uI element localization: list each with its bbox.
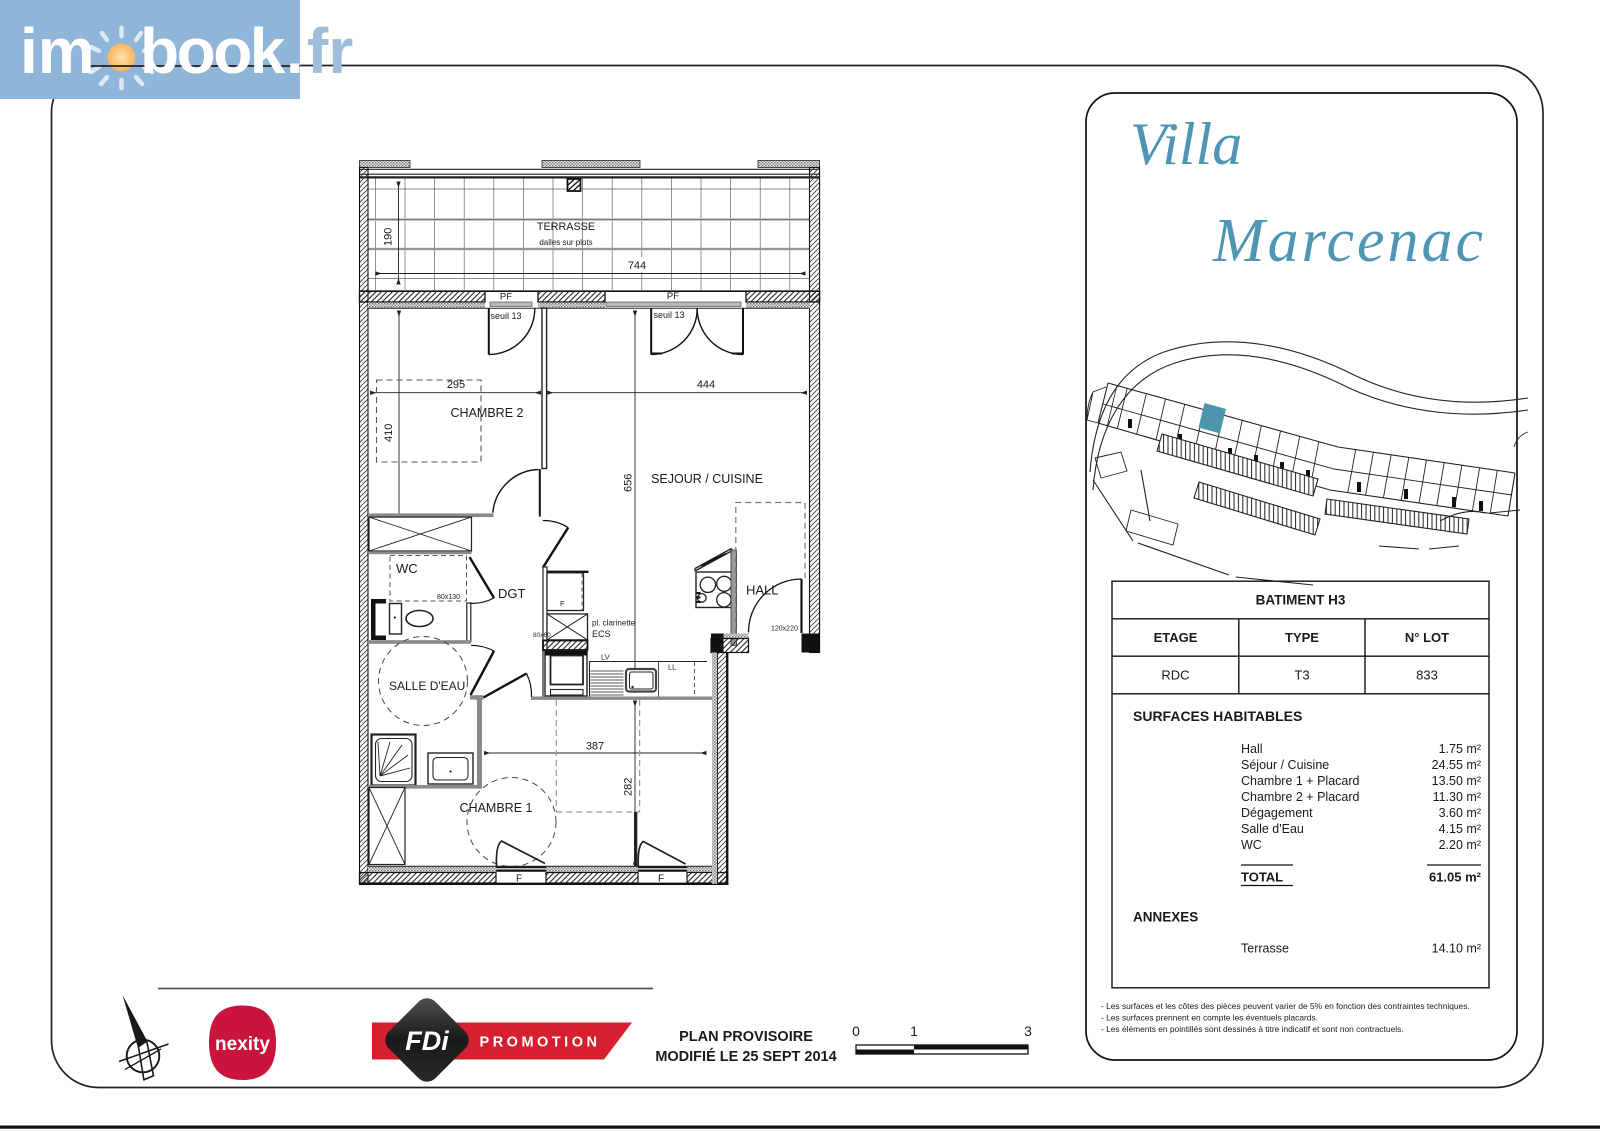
svg-text:SURFACES HABITABLES: SURFACES HABITABLES [1133,708,1302,724]
svg-text:3.60 m²: 3.60 m² [1439,806,1481,820]
svg-text:Hall: Hall [1241,742,1263,756]
svg-text:TYPE: TYPE [1285,630,1319,645]
svg-text:WC: WC [1241,838,1262,852]
svg-text:833: 833 [1416,668,1438,683]
svg-text:ETAGE: ETAGE [1154,630,1198,645]
svg-text:.: . [286,15,304,87]
svg-text:444: 444 [697,379,715,391]
svg-text:TERRASSE: TERRASSE [537,221,595,233]
svg-text:fr: fr [307,15,353,87]
svg-text:ANNEXES: ANNEXES [1133,910,1198,925]
svg-text:80x60: 80x60 [533,632,551,639]
svg-text:282: 282 [623,778,635,796]
svg-text:13.50 m²: 13.50 m² [1432,774,1481,788]
svg-text:410: 410 [383,424,395,442]
svg-text:RDC: RDC [1161,668,1189,683]
svg-text:SALLE D'EAU: SALLE D'EAU [389,679,465,693]
svg-text:seuil 13: seuil 13 [490,311,521,321]
svg-text:24.55 m²: 24.55 m² [1432,758,1481,772]
svg-text:N° LOT: N° LOT [1405,630,1449,645]
svg-text:CHAMBRE 1: CHAMBRE 1 [460,801,533,815]
svg-text:Marcenac: Marcenac [1212,207,1486,275]
svg-text:PF: PF [667,291,679,302]
svg-text:Chambre 2 + Placard: Chambre 2 + Placard [1241,790,1360,804]
svg-text:LL: LL [668,663,676,672]
svg-text:Terrasse: Terrasse [1241,942,1289,956]
svg-text:F: F [560,599,565,608]
svg-text:DGT: DGT [498,586,526,601]
svg-text:BATIMENT H3: BATIMENT H3 [1256,593,1346,608]
svg-text:120x220: 120x220 [771,626,798,633]
svg-text:seuil 13: seuil 13 [653,310,684,320]
svg-text:Séjour / Cuisine: Séjour / Cuisine [1241,758,1329,772]
svg-text:PLAN PROVISOIRE: PLAN PROVISOIRE [679,1029,813,1045]
svg-text:ECS: ECS [592,629,611,639]
svg-text:SEJOUR / CUISINE: SEJOUR / CUISINE [651,472,763,486]
svg-text:2.20 m²: 2.20 m² [1439,838,1481,852]
svg-text:190: 190 [383,228,395,246]
svg-text:Dégagement: Dégagement [1241,806,1313,820]
svg-text:PF: PF [500,292,512,303]
svg-text:book: book [140,15,286,87]
svg-text:LV: LV [601,653,610,662]
svg-text:14.10 m²: 14.10 m² [1432,942,1481,956]
svg-text:744: 744 [628,260,646,272]
svg-text:- Les surfaces prennent en com: - Les surfaces prennent en compte les év… [1101,1013,1318,1023]
svg-text:im: im [20,15,95,87]
svg-text:WC: WC [396,561,418,576]
svg-text:CHAMBRE 2: CHAMBRE 2 [451,406,524,420]
svg-text:PROMOTION: PROMOTION [480,1035,601,1051]
svg-text:295: 295 [447,379,465,391]
svg-text:FDi: FDi [405,1026,449,1056]
svg-text:387: 387 [586,741,604,753]
svg-text:61.05 m²: 61.05 m² [1429,870,1482,885]
svg-text:4.15 m²: 4.15 m² [1439,822,1481,836]
svg-text:- Les surfaces et les côtes de: - Les surfaces et les côtes des pièces p… [1101,1001,1470,1011]
svg-text:1: 1 [910,1023,918,1039]
svg-text:dalles sur plots: dalles sur plots [539,238,592,247]
svg-text:MODIFIÉ LE 25 SEPT 2014: MODIFIÉ LE 25 SEPT 2014 [655,1048,836,1065]
svg-text:- Les éléments en pointillés s: - Les éléments en pointillés sont dessin… [1101,1024,1404,1034]
svg-text:TOTAL: TOTAL [1241,870,1283,885]
svg-text:T3: T3 [1294,668,1309,683]
svg-text:656: 656 [623,474,635,492]
svg-text:80x130: 80x130 [437,594,460,601]
svg-text:0: 0 [852,1023,860,1039]
svg-text:F: F [516,874,522,885]
svg-text:HALL: HALL [746,583,779,598]
svg-text:Salle d'Eau: Salle d'Eau [1241,822,1304,836]
svg-text:1.75 m²: 1.75 m² [1439,742,1481,756]
svg-text:11.30 m²: 11.30 m² [1433,790,1481,804]
svg-text:pl. clarinette: pl. clarinette [592,619,636,628]
svg-text:F: F [658,874,664,885]
svg-text:nexity: nexity [215,1034,270,1055]
svg-text:Villa: Villa [1130,111,1242,177]
svg-text:3: 3 [1024,1023,1032,1039]
svg-text:Chambre 1 + Placard: Chambre 1 + Placard [1241,774,1360,788]
